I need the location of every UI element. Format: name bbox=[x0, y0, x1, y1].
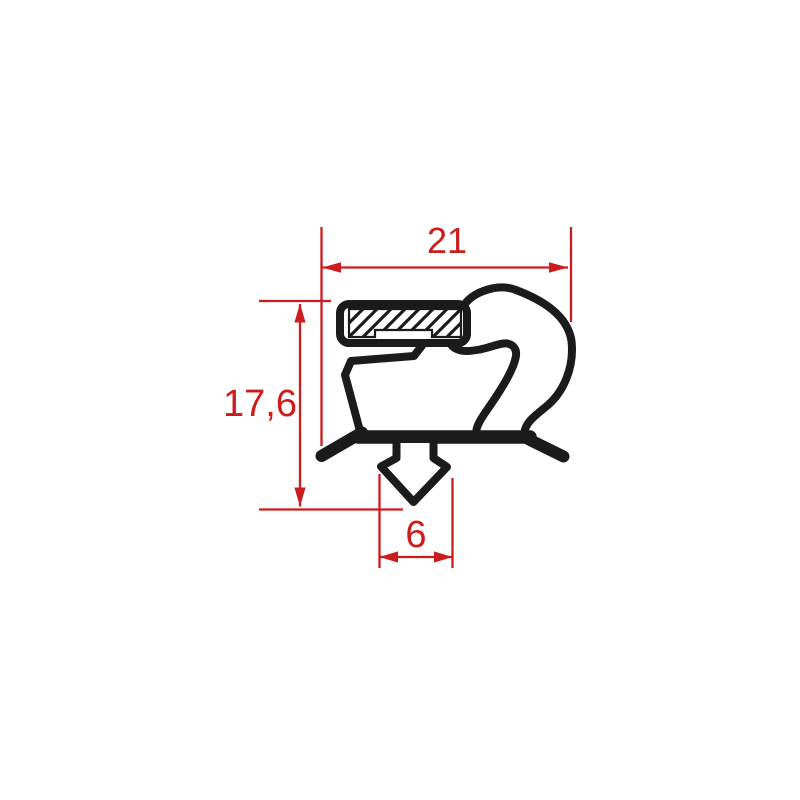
arrowhead-left-icon bbox=[380, 551, 399, 562]
arrowhead-right-icon bbox=[434, 551, 453, 562]
inner-fold-profile bbox=[452, 343, 516, 429]
left-wall-profile bbox=[345, 343, 424, 431]
dimension-label-left: 17,6 bbox=[223, 383, 297, 425]
dimension-label-bottom: 6 bbox=[405, 514, 426, 556]
gasket-profile bbox=[322, 287, 572, 502]
right-foot bbox=[529, 440, 564, 457]
left-foot bbox=[322, 433, 363, 457]
push-in-dart bbox=[381, 443, 447, 502]
arrowhead-right-icon bbox=[549, 262, 568, 273]
drawing-canvas: 21 17,6 6 bbox=[0, 0, 800, 800]
arrowhead-up-icon bbox=[294, 304, 305, 323]
gasket-profile-diagram: 21 17,6 6 bbox=[0, 0, 800, 800]
dimension-label-top: 21 bbox=[427, 220, 467, 261]
arrowhead-left-icon bbox=[322, 262, 341, 273]
arrowhead-down-icon bbox=[294, 488, 305, 507]
